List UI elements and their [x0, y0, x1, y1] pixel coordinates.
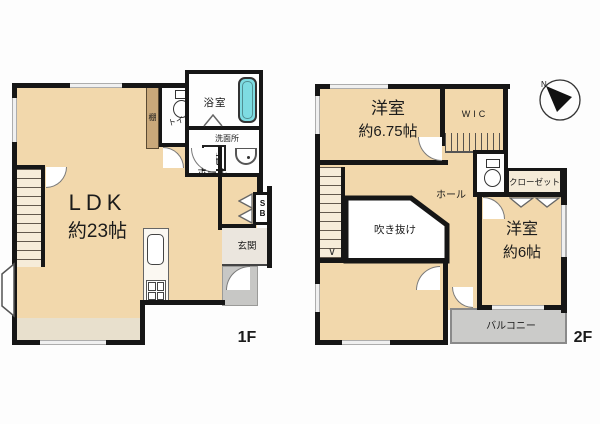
balcony-label: バルコニー — [476, 322, 546, 332]
window-bedroom6-balcony — [492, 305, 544, 310]
window-2f-top — [330, 84, 388, 89]
window-room-lower-bottom — [342, 340, 390, 345]
entrance-label: 玄関 — [230, 242, 264, 252]
wall-1f-kitchen-bottom — [140, 300, 225, 305]
shoebox-label-s: S — [260, 199, 265, 208]
toilet-room-2f — [473, 150, 508, 197]
window-deck-strip — [17, 318, 141, 340]
wall-bedroom6-left — [477, 192, 482, 310]
shoebox-label-b: B — [260, 209, 266, 218]
stove-icon — [146, 280, 166, 302]
hall-2f-label: ホール — [430, 191, 472, 201]
closet-label: クローゼット — [509, 178, 560, 187]
bedroom675-size-label: 約6.75帖 — [340, 124, 436, 139]
void-label: 吹き抜け — [355, 225, 435, 236]
compass-north-label: N — [541, 80, 547, 89]
wall-bedroom675-bottom — [315, 160, 448, 165]
north-arrow-icon: N — [536, 76, 584, 124]
wall-room-lower-right — [443, 262, 448, 345]
window-2f-left-lower — [315, 284, 320, 312]
toilet-icon — [484, 159, 501, 187]
bathtub-icon — [238, 77, 257, 123]
ldk-size-label: 約23帖 — [40, 222, 155, 241]
wall-1f-right-lower — [257, 173, 263, 193]
bath-label: 浴室 — [195, 98, 235, 109]
floor-2f-label: 2F — [568, 330, 598, 346]
window-1f-left — [12, 98, 17, 142]
window-2f-left-upper — [315, 96, 320, 134]
stairs-down-arrow: ∨ — [324, 247, 340, 258]
floor-plan-canvas: トイレ 棚 浴室 洗面所 洗 S B — [0, 0, 600, 424]
balcony-area: バルコニー — [450, 308, 567, 344]
bedroom6-name-label: 洋室 — [492, 222, 552, 238]
wall-room-lower-top — [315, 258, 448, 263]
shelf-label: 棚 — [149, 114, 157, 122]
bay-window-icon — [0, 262, 16, 318]
window-1f-top — [70, 83, 122, 88]
wall-bedroom6-top — [477, 192, 567, 197]
window-1f-bottom — [40, 340, 106, 345]
bedroom675-name-label: 洋室 — [348, 100, 428, 117]
ldk-name-label: LDK — [50, 192, 145, 214]
bifold-door-icon — [203, 114, 225, 127]
closet-doors-icon — [509, 197, 561, 209]
shoebox-doors-icon — [238, 193, 253, 225]
bedroom6-size-label: 約6帖 — [490, 245, 554, 260]
shelf-strip: 棚 — [146, 87, 159, 149]
wic-label: WIC — [450, 110, 500, 119]
wall-ldk-hall — [218, 146, 222, 230]
wall-1f-ext-right — [140, 300, 145, 345]
entrance-area: 玄関 — [222, 228, 272, 266]
wall-entrance-right — [267, 186, 272, 268]
hall-1f-label: ホール — [192, 169, 232, 179]
washroom-label: 洗面所 — [207, 135, 247, 143]
window-bedroom6-right — [561, 205, 567, 257]
washbasin-icon — [235, 148, 257, 165]
wall-wic-right — [503, 84, 508, 154]
floor-1f-label: 1F — [232, 330, 262, 346]
wall-hall-entrance — [218, 224, 256, 228]
